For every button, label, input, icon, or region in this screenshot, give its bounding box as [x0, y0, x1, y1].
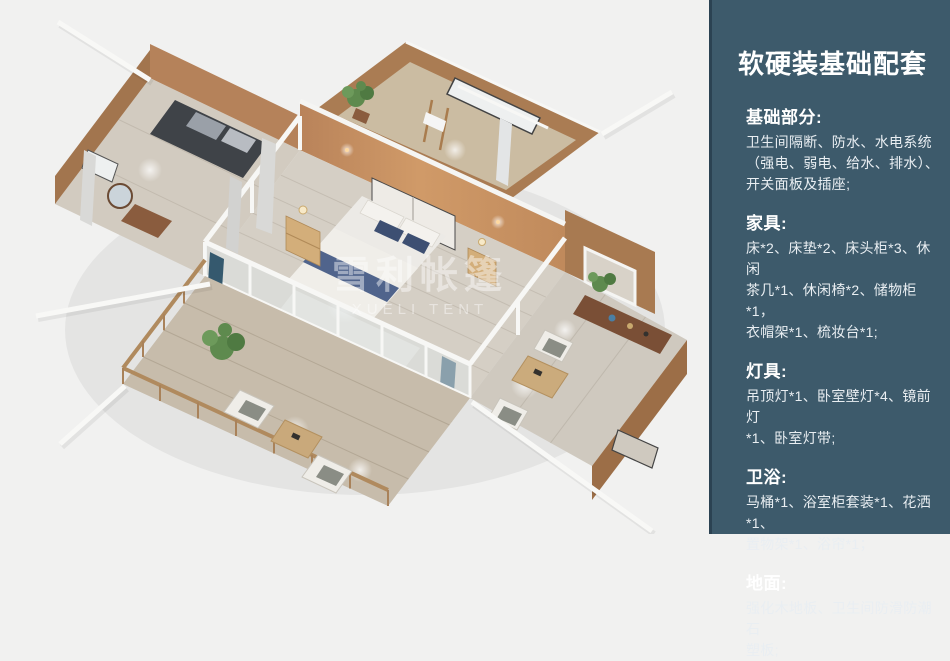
- section-line: 开关面板及插座;: [746, 174, 940, 195]
- section-line: 塑板;: [746, 640, 940, 661]
- render-area: 雪利帐篷 XUELI TENT: [0, 0, 709, 534]
- slide: 雪利帐篷 XUELI TENT 软硬装基础配套 基础部分: 卫生间隔断、防水、水…: [0, 0, 950, 534]
- section-heading: 卫浴:: [746, 463, 940, 488]
- watermark-cn: 雪利帐篷: [332, 255, 508, 297]
- render-figure: 雪利帐篷 XUELI TENT: [0, 0, 709, 534]
- section-heading: 地面:: [746, 569, 940, 594]
- section-bathroom: 卫浴: 马桶*1、浴室柜套装*1、花洒*1、 置物架*1、浴帘*1；: [746, 463, 940, 555]
- section-line: （强电、弱电、给水、排水）、: [746, 153, 940, 174]
- section-line: 卫生间隔断、防水、水电系统: [746, 132, 940, 153]
- watermark-en: XUELI TENT: [352, 301, 488, 318]
- panel-title: 软硬装基础配套: [738, 44, 940, 81]
- watermark: 雪利帐篷 XUELI TENT: [332, 255, 508, 318]
- mirror: [108, 184, 132, 208]
- section-line: 床*2、床垫*2、床头柜*3、休闲: [746, 238, 940, 280]
- section-flooring: 地面: 强化木地板、卫生间防滑防潮石 塑板;: [746, 569, 940, 661]
- section-line: 强化木地板、卫生间防滑防潮石: [746, 598, 940, 640]
- section-line: 茶几*1、休闲椅*2、储物柜*1，: [746, 280, 940, 322]
- section-heading: 基础部分:: [746, 103, 940, 128]
- spec-panel: 软硬装基础配套 基础部分: 卫生间隔断、防水、水电系统 （强电、弱电、给水、排水…: [709, 0, 950, 534]
- section-lighting: 灯具: 吊顶灯*1、卧室壁灯*4、镜前灯 *1、卧室灯带;: [746, 357, 940, 449]
- section-heading: 家具:: [746, 209, 940, 234]
- section-furniture: 家具: 床*2、床垫*2、床头柜*3、休闲 茶几*1、休闲椅*2、储物柜*1， …: [746, 209, 940, 343]
- section-basics: 基础部分: 卫生间隔断、防水、水电系统 （强电、弱电、给水、排水）、 开关面板及…: [746, 103, 940, 195]
- section-line: 衣帽架*1、梳妆台*1;: [746, 322, 940, 343]
- section-line: 马桶*1、浴室柜套装*1、花洒*1、: [746, 492, 940, 534]
- section-heading: 灯具:: [746, 357, 940, 382]
- section-line: 置物架*1、浴帘*1；: [746, 534, 940, 555]
- section-line: 吊顶灯*1、卧室壁灯*4、镜前灯: [746, 386, 940, 428]
- section-line: *1、卧室灯带;: [746, 428, 940, 449]
